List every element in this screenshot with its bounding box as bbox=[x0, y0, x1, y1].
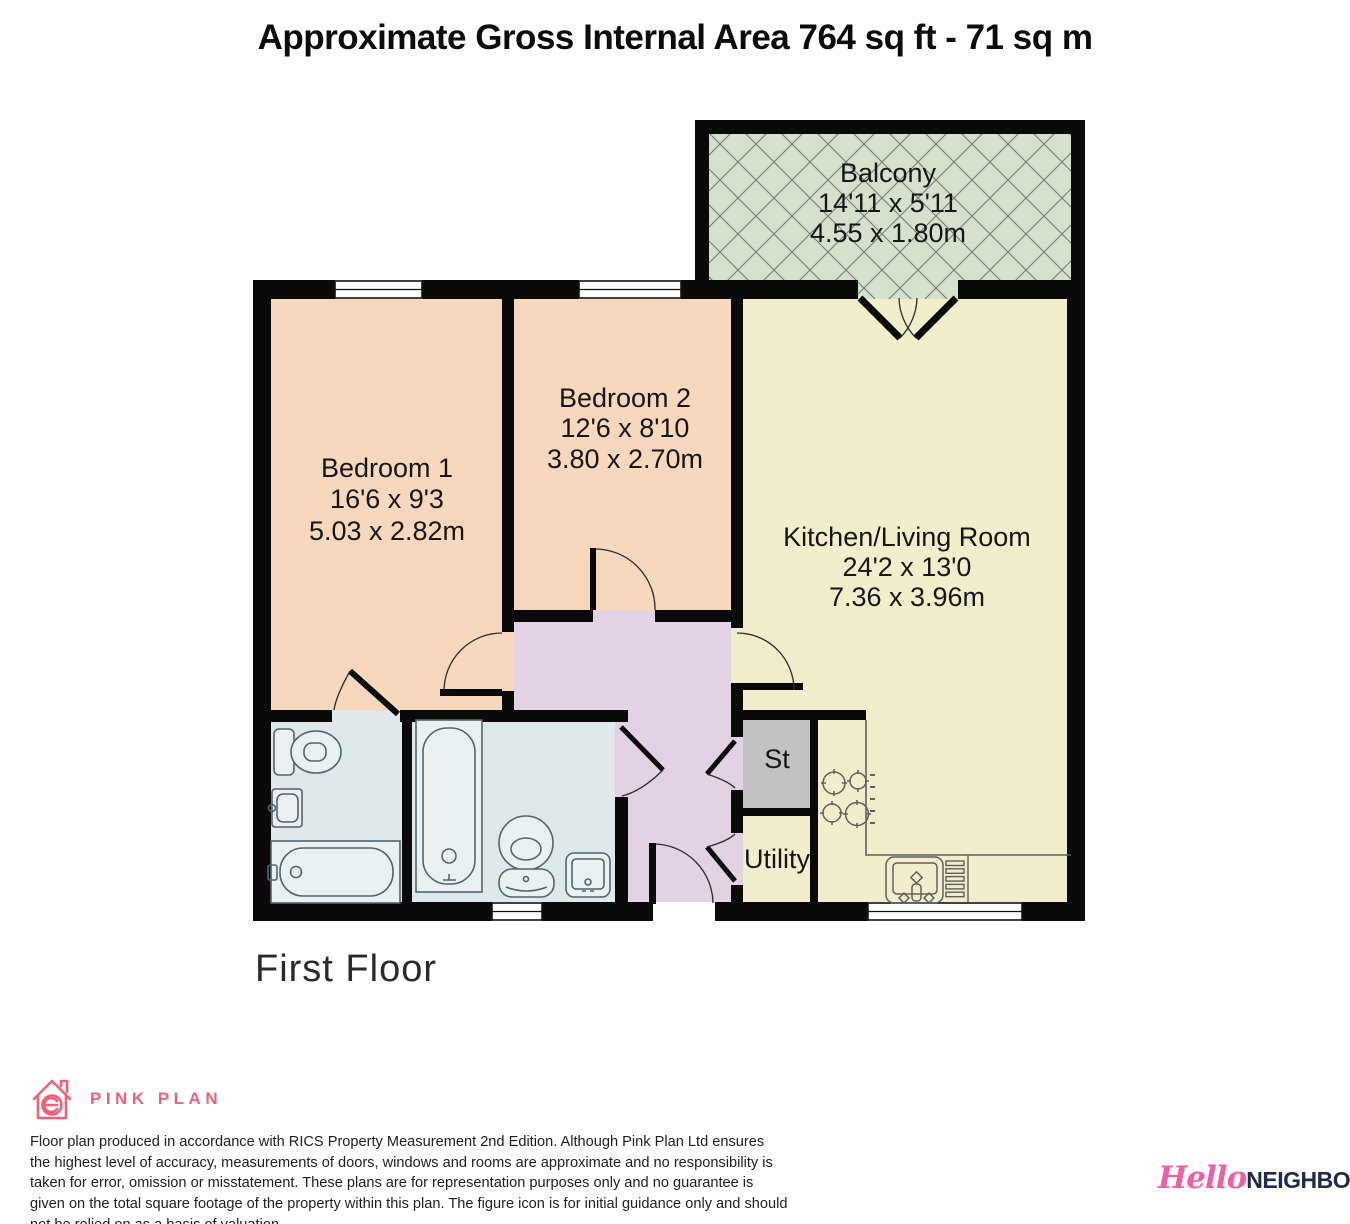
wall-bottom-b bbox=[542, 902, 653, 921]
bedroom1-dim-metric: 5.03 x 2.82m bbox=[309, 516, 465, 546]
threshold-bedroom1 bbox=[502, 632, 514, 691]
bathtub-icon bbox=[416, 720, 482, 892]
wall-top-d bbox=[958, 280, 1071, 299]
window-icon bbox=[868, 903, 1022, 920]
wall-counter-stub bbox=[743, 710, 866, 720]
wall-hall-kitchen-a bbox=[731, 683, 743, 737]
toilet-bowl-icon bbox=[291, 731, 341, 773]
wall-bath-divider bbox=[402, 722, 412, 902]
wall-storage-right bbox=[810, 710, 818, 902]
wall-bed1-bed2 bbox=[502, 299, 514, 632]
balcony-label: Balcony bbox=[840, 158, 937, 188]
balcony-hatch-pattern-gap bbox=[858, 280, 958, 299]
wall-hall-kitchen-c bbox=[731, 885, 743, 902]
wall-balcony-right bbox=[1071, 120, 1085, 282]
balcony-dim-imperial: 14'11 x 5'11 bbox=[818, 188, 958, 218]
wall-exterior-right bbox=[1067, 280, 1085, 921]
floorplan-page: Approximate Gross Internal Area 764 sq f… bbox=[0, 0, 1350, 1224]
wall-storage-bottom bbox=[743, 808, 818, 816]
producer-name: PINK PLAN bbox=[90, 1089, 222, 1109]
room-hallway-upper bbox=[514, 610, 731, 710]
wall-bottom-a bbox=[253, 902, 492, 921]
toilet-base-icon bbox=[499, 869, 554, 897]
agent-logo-bold: NEIGHBOUR bbox=[1246, 1167, 1350, 1194]
pink-plan-house-icon bbox=[30, 1076, 74, 1122]
producer-branding: PINK PLAN bbox=[30, 1076, 222, 1122]
floor-label: First Floor bbox=[255, 948, 437, 991]
threshold-ensuite bbox=[332, 710, 400, 722]
agent-logo: Hello NEIGHBOUR bbox=[1158, 1160, 1350, 1196]
threshold-bedroom2 bbox=[593, 610, 655, 622]
bedroom2-dim-metric: 3.80 x 2.70m bbox=[547, 444, 703, 474]
wall-top-b bbox=[422, 280, 579, 299]
room-hallway-corridor bbox=[628, 710, 731, 902]
bedroom1-label: Bedroom 1 bbox=[321, 453, 453, 483]
wall-bed2-bottom-a bbox=[514, 610, 593, 622]
wall-balcony-left bbox=[695, 120, 709, 282]
wall-bed1-bottom-a bbox=[271, 710, 332, 722]
kitchen-living-dim-metric: 7.36 x 3.96m bbox=[829, 582, 985, 612]
bedroom2-label: Bedroom 2 bbox=[559, 383, 691, 413]
bedroom2-dim-imperial: 12'6 x 8'10 bbox=[561, 413, 690, 443]
toilet-bowl-icon bbox=[499, 816, 553, 870]
kitchen-living-dim-imperial: 24'2 x 13'0 bbox=[843, 552, 972, 582]
bedroom1-dim-imperial: 16'6 x 9'3 bbox=[330, 484, 444, 514]
wall-bottom-d bbox=[1022, 902, 1085, 921]
wall-bed2-bottom-b bbox=[655, 610, 731, 622]
wall-bathroom-right bbox=[615, 797, 628, 902]
wall-exterior-left bbox=[253, 280, 271, 921]
agent-logo-script: Hello bbox=[1158, 1160, 1246, 1196]
floorplan-drawing: Balcony 14'11 x 5'11 4.55 x 1.80m Bedroo… bbox=[0, 0, 1350, 1224]
threshold-front-door bbox=[653, 902, 715, 921]
wall-bed2-kitchen bbox=[731, 299, 743, 628]
wall-hall-kitchen-b bbox=[731, 790, 743, 833]
window-icon bbox=[579, 281, 681, 298]
wall-bottom-c bbox=[715, 902, 868, 921]
wall-balcony-top bbox=[695, 120, 1085, 134]
window-icon bbox=[335, 281, 422, 298]
threshold-kitchen bbox=[731, 628, 743, 683]
kitchen-living-label: Kitchen/Living Room bbox=[783, 522, 1031, 552]
storage-label: St bbox=[764, 744, 790, 774]
utility-label: Utility bbox=[744, 844, 810, 874]
window-icon bbox=[492, 903, 542, 920]
wall-top-a bbox=[253, 280, 335, 299]
balcony-dim-metric: 4.55 x 1.80m bbox=[810, 218, 966, 248]
wall-top-c bbox=[681, 280, 858, 299]
disclaimer-text: Floor plan produced in accordance with R… bbox=[30, 1132, 788, 1224]
